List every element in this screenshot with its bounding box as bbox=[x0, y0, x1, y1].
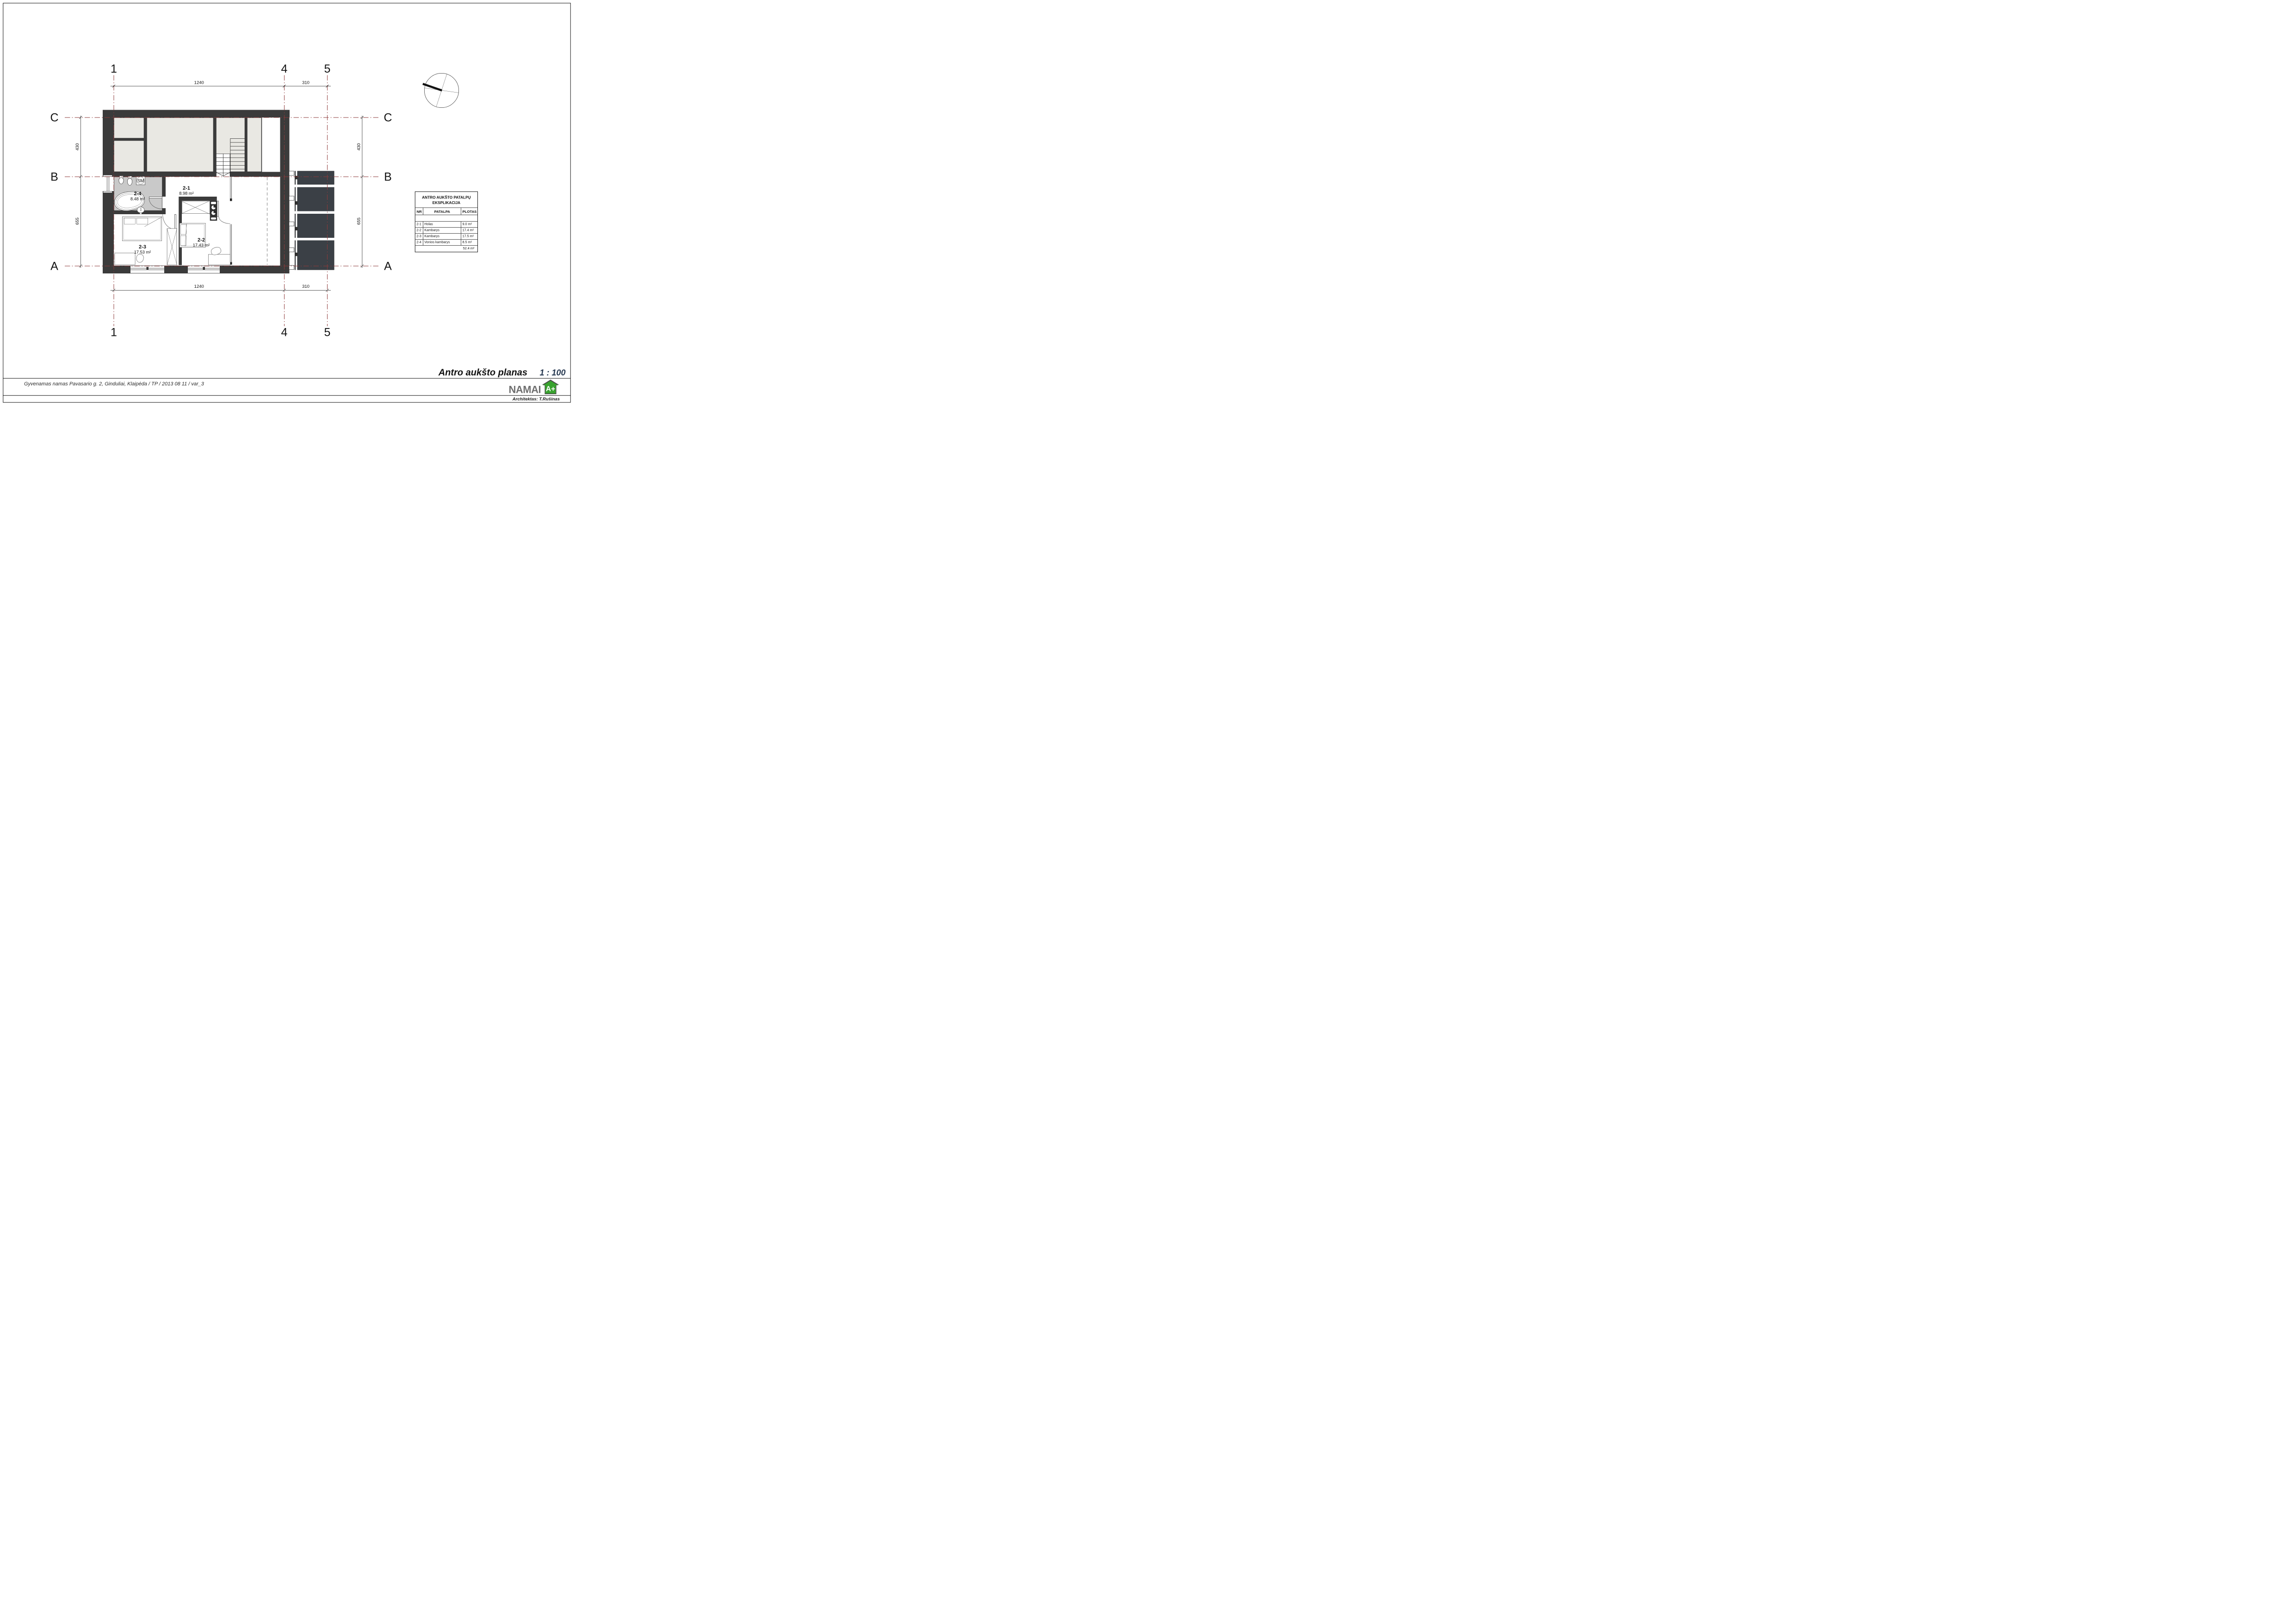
dim-value: 1240 bbox=[194, 284, 204, 289]
table-header-nr: NR bbox=[415, 208, 423, 215]
stair-tread bbox=[230, 169, 245, 169]
grid-axis-5 bbox=[327, 75, 328, 327]
drawing-sheet: SM bbox=[0, 0, 574, 406]
project-description: Gyvenamas namas Pavasario g. 2, Gindulia… bbox=[24, 381, 204, 387]
dim-value: 655 bbox=[356, 217, 361, 225]
dim-value: 430 bbox=[75, 143, 80, 151]
wall-partition bbox=[179, 197, 217, 201]
terrace-post bbox=[295, 253, 298, 256]
washing-machine-label: SM bbox=[136, 178, 145, 183]
room-id: 2-2 bbox=[193, 237, 210, 243]
stair-winder-line bbox=[216, 165, 230, 166]
room-id: 2-3 bbox=[134, 244, 151, 250]
roof-break-dashed-line bbox=[267, 177, 267, 265]
washing-machine: SM bbox=[136, 176, 145, 185]
cell-plotas: 17.5 m² bbox=[461, 234, 477, 239]
dim-value: 310 bbox=[302, 284, 309, 289]
drawing-scale: 1 : 100 bbox=[531, 368, 566, 378]
room-area: 17.43 m² bbox=[193, 243, 210, 248]
table-header-plotas: PLOTAS bbox=[461, 208, 477, 215]
chimney-block bbox=[210, 201, 217, 221]
cell-nr: 2-3 bbox=[415, 234, 423, 239]
cell-nr: 2-1 bbox=[415, 222, 423, 227]
glass-partition bbox=[230, 177, 232, 199]
pillow-icon bbox=[124, 218, 136, 224]
window-west-sill bbox=[103, 191, 113, 193]
room-label-2-1: 2-1 8.98 m² bbox=[179, 185, 193, 196]
dim-line-top bbox=[111, 86, 331, 87]
grid-label-right-A: A bbox=[384, 260, 392, 273]
grid-label-bottom-5: 5 bbox=[324, 326, 331, 339]
wall-partition bbox=[114, 138, 144, 141]
table-title-line2: EKSPLIKACIJA bbox=[415, 200, 477, 205]
grid-label-right-B: B bbox=[384, 170, 392, 184]
terrace-tab bbox=[289, 248, 295, 252]
cell-patalpa: Kambarys bbox=[423, 228, 461, 233]
terrace-tab bbox=[289, 222, 295, 226]
grid-label-top-4: 4 bbox=[281, 62, 288, 75]
cell-patalpa: Holas bbox=[423, 222, 461, 227]
table-title-line1: ANTRO AUKŠTO PATALPŲ bbox=[415, 195, 477, 200]
grid-axis-B bbox=[65, 177, 379, 177]
room-label-2-2: 2-2 17.43 m² bbox=[193, 237, 210, 248]
terrace-tab bbox=[289, 171, 295, 176]
terrace-post bbox=[295, 227, 298, 231]
cell-plotas: 17.4 m² bbox=[461, 228, 477, 233]
room-id: 2-1 bbox=[179, 185, 193, 191]
terrace-gap bbox=[295, 185, 334, 187]
table-row: 2-3 Kambarys 17.5 m² bbox=[415, 234, 477, 240]
cell-nr: 2-2 bbox=[415, 228, 423, 233]
room-area: 17.53 m² bbox=[134, 250, 151, 255]
room-label-2-3: 2-3 17.53 m² bbox=[134, 244, 151, 254]
grid-label-top-1: 1 bbox=[111, 62, 117, 75]
table-row: 2-1 Holas 9.0 m² bbox=[415, 222, 477, 228]
table-header-patalpa: PATALPA bbox=[423, 208, 461, 215]
wall-attic-band bbox=[230, 172, 280, 177]
attic-edge-line bbox=[262, 118, 262, 172]
window-mullion bbox=[147, 267, 149, 270]
stair-winder-line bbox=[216, 169, 230, 169]
room-door-leaf bbox=[174, 214, 176, 229]
dim-value: 430 bbox=[356, 143, 361, 151]
terrace-gap bbox=[295, 211, 334, 214]
sink-pedestal bbox=[140, 212, 142, 214]
grid-label-left-B: B bbox=[50, 170, 58, 184]
table-spacer-row bbox=[415, 215, 477, 222]
room-id: 2-4 bbox=[130, 191, 145, 197]
grid-axis-A bbox=[65, 266, 379, 266]
room-label-2-4: 2-4 8.48 m² bbox=[130, 191, 145, 201]
grid-label-left-C: C bbox=[50, 111, 58, 124]
cell-patalpa: Vonios kambarys bbox=[423, 240, 461, 245]
stair-tread bbox=[230, 150, 245, 150]
pillow-icon bbox=[137, 218, 149, 224]
table-total-value: 52.4 m² bbox=[462, 246, 476, 251]
grid-axis-C bbox=[65, 118, 379, 118]
cell-patalpa: Kambarys bbox=[423, 234, 461, 239]
terrace-post bbox=[295, 201, 298, 205]
chimney-slot bbox=[211, 202, 216, 204]
attic-room-floor bbox=[147, 118, 214, 172]
glass-partition-post bbox=[230, 198, 232, 201]
grid-label-left-A: A bbox=[50, 260, 58, 273]
stair-winder-line bbox=[216, 161, 230, 162]
cell-nr: 2-4 bbox=[415, 240, 423, 245]
grid-label-top-5: 5 bbox=[324, 62, 331, 75]
wall-bottom bbox=[103, 266, 130, 273]
attic-room-floor bbox=[114, 141, 144, 172]
dim-value: 1240 bbox=[194, 80, 204, 85]
wall-bathroom bbox=[162, 177, 166, 197]
footer-divider-line bbox=[3, 395, 571, 396]
cell-plotas: 9.0 m² bbox=[461, 222, 477, 227]
table-total-row: 52.4 m² bbox=[415, 246, 477, 251]
wall-partition bbox=[245, 118, 248, 172]
table-title: ANTRO AUKŠTO PATALPŲ EKSPLIKACIJA bbox=[415, 192, 477, 208]
grid-axis-1 bbox=[114, 75, 114, 327]
energy-badge-label: A+ bbox=[543, 385, 558, 393]
brand-logo: NAMAI A+ bbox=[509, 380, 559, 395]
chimney-flue-icon bbox=[211, 211, 216, 216]
wall-right bbox=[280, 110, 290, 274]
stair-tread bbox=[230, 161, 245, 162]
table-header-row: NR PATALPA PLOTAS bbox=[415, 208, 477, 215]
stair-tread bbox=[230, 158, 245, 158]
terrace-tab bbox=[289, 196, 295, 201]
wall-partition bbox=[144, 118, 147, 172]
dim-value: 310 bbox=[302, 80, 309, 85]
table-row: 2-2 Kambarys 17.4 m² bbox=[415, 228, 477, 234]
wall-bottom bbox=[164, 266, 188, 273]
dim-value: 655 bbox=[75, 217, 80, 225]
chimney-flue-icon bbox=[211, 205, 216, 210]
stair-tread bbox=[230, 154, 245, 154]
drawing-sheet-viewport: SM bbox=[0, 0, 574, 406]
explication-table: ANTRO AUKŠTO PATALPŲ EKSPLIKACIJA NR PAT… bbox=[415, 192, 478, 253]
grid-label-right-C: C bbox=[384, 111, 392, 124]
wall-left bbox=[103, 191, 114, 273]
dim-line-bottom bbox=[111, 290, 331, 291]
brand-name: NAMAI bbox=[509, 384, 541, 396]
desk-icon bbox=[115, 253, 136, 265]
dim-line-right bbox=[362, 116, 363, 268]
window-west-glazing bbox=[109, 177, 109, 192]
stair-tread bbox=[230, 138, 245, 139]
stair-tread bbox=[230, 142, 245, 143]
glass-door-leaf bbox=[217, 201, 219, 217]
chimney-slot bbox=[211, 217, 216, 220]
attic-room-floor bbox=[247, 118, 262, 172]
grid-axis-4 bbox=[284, 75, 285, 327]
wall-bottom bbox=[220, 266, 290, 273]
desk-icon bbox=[208, 254, 230, 266]
terrace-gap bbox=[295, 238, 334, 241]
titleblock-divider-line bbox=[3, 378, 571, 378]
sink-tap bbox=[140, 208, 142, 211]
stair-tread bbox=[230, 165, 245, 166]
stair-winder-line bbox=[216, 158, 230, 158]
wall-bathroom bbox=[103, 211, 166, 215]
cell-plotas: 8.5 m² bbox=[461, 240, 477, 245]
dim-line-left bbox=[80, 116, 81, 268]
window-mullion bbox=[203, 267, 205, 270]
room-area: 8.48 m² bbox=[130, 197, 145, 202]
drawing-title: Antro aukšto planas bbox=[412, 367, 527, 378]
glass-partition bbox=[230, 224, 232, 265]
room-area: 8.98 m² bbox=[179, 191, 193, 196]
window-west-glazing bbox=[107, 177, 107, 192]
wall-left bbox=[103, 110, 114, 177]
wall-top bbox=[103, 110, 290, 118]
attic-room-floor bbox=[114, 118, 144, 138]
architect-credit: Architektas: T.Rušinas bbox=[463, 396, 560, 402]
grid-label-bottom-4: 4 bbox=[281, 326, 288, 339]
table-row: 2-4 Vonios kambarys 8.5 m² bbox=[415, 240, 477, 246]
stair-tread bbox=[230, 146, 245, 147]
grid-label-bottom-1: 1 bbox=[111, 326, 117, 339]
